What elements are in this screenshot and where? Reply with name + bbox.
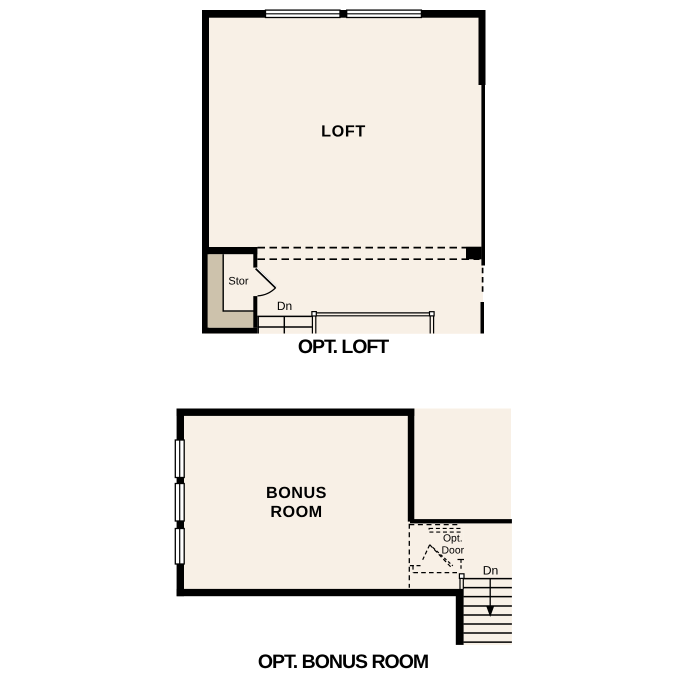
svg-text:ROOM: ROOM (270, 503, 322, 521)
svg-text:Door: Door (442, 545, 465, 556)
svg-text:Dn: Dn (483, 564, 499, 578)
svg-text:BONUS: BONUS (266, 484, 327, 502)
svg-text:Stor: Stor (228, 276, 249, 288)
svg-text:LOFT: LOFT (321, 123, 366, 141)
svg-text:Dn: Dn (277, 299, 292, 313)
svg-text:Opt.: Opt. (443, 533, 463, 544)
svg-text:OPT. LOFT: OPT. LOFT (298, 336, 389, 358)
svg-text:OPT. BONUS ROOM: OPT. BONUS ROOM (258, 651, 428, 673)
